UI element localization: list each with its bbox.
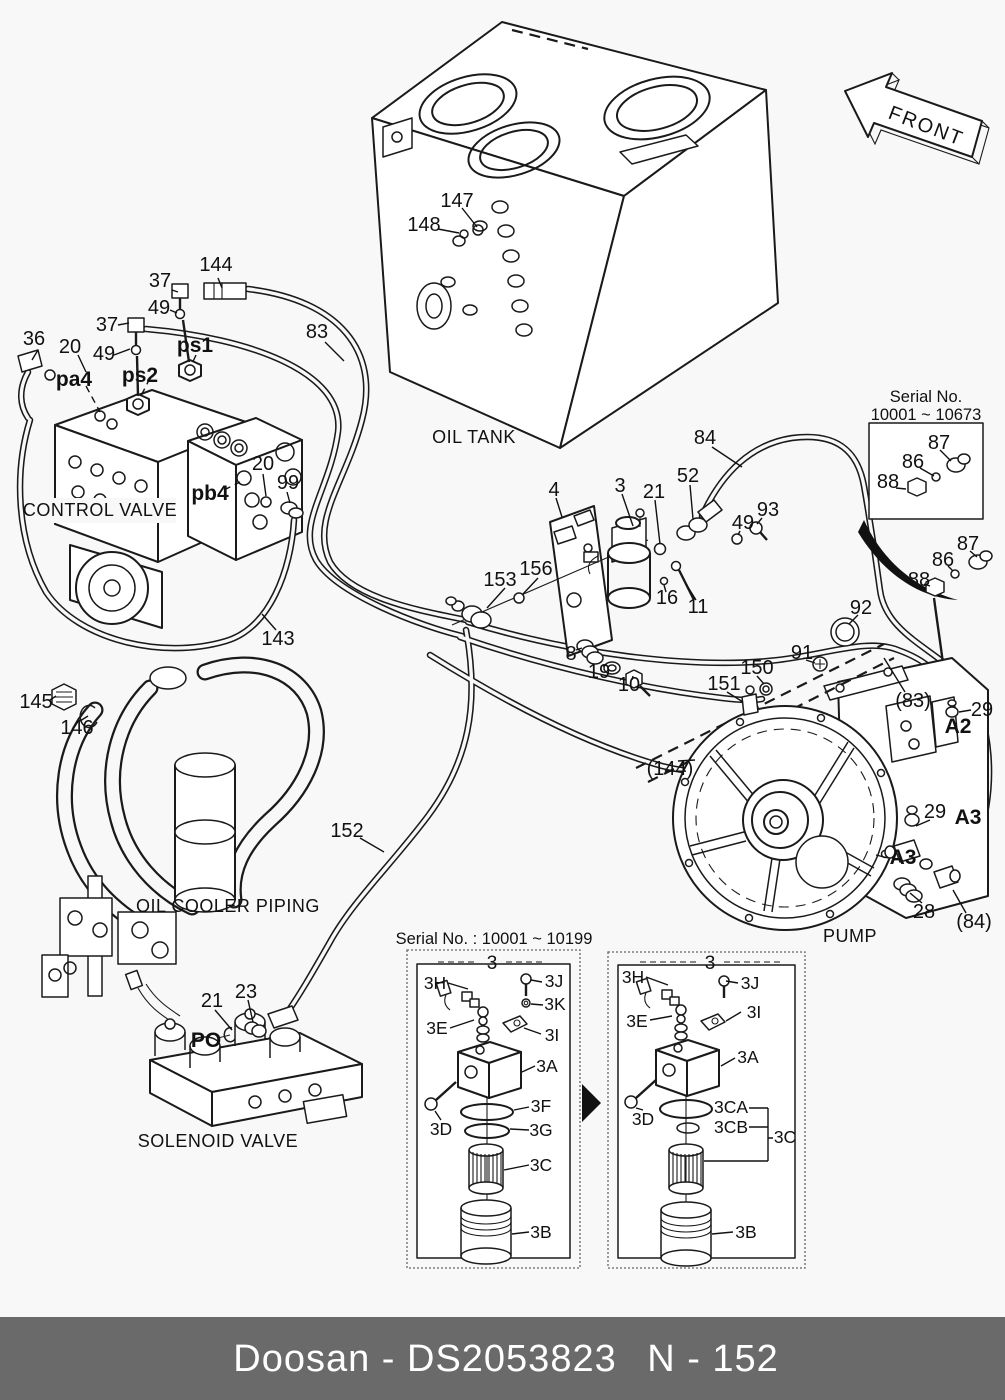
inset-right-3i: 3I	[747, 1002, 762, 1022]
part-label-150: 150	[740, 657, 773, 679]
part-label-37b: 37	[96, 314, 118, 336]
part-label-23: 23	[235, 981, 257, 1003]
part-label-20a: 20	[59, 336, 81, 358]
inset-left-3h: 3H	[424, 973, 446, 993]
part-label-86a: 86	[902, 451, 924, 473]
control-valve-drawing	[26, 360, 302, 628]
part-label-144p: (144)	[647, 758, 694, 780]
part-label-156: 156	[519, 558, 552, 580]
section-label-solenoid-valve: SOLENOID VALVE	[138, 1131, 298, 1151]
inset-left-3b: 3B	[530, 1222, 551, 1242]
port-label-a2: A2	[945, 715, 972, 738]
part-label-91: 91	[791, 642, 813, 664]
parts-diagram-page: FRONT	[0, 0, 1005, 1400]
part-label-16: 16	[656, 587, 678, 609]
front-arrow: FRONT	[845, 73, 989, 164]
part-label-145: 145	[19, 691, 52, 713]
inset-left-3e: 3E	[426, 1018, 447, 1038]
section-label-oil-cooler-piping: OIL COOLER PIPING	[136, 896, 320, 916]
part-label-146: 146	[60, 717, 93, 739]
section-label-oil-tank: OIL TANK	[432, 427, 516, 447]
inset-left-3d: 3D	[430, 1119, 452, 1139]
inset-right-3a: 3A	[737, 1047, 759, 1067]
part-label-36: 36	[23, 328, 45, 350]
port-label-a3a: A3	[955, 806, 982, 829]
inset-right-3d: 3D	[632, 1109, 654, 1129]
serial-note-line1: Serial No.	[890, 388, 962, 406]
part-label-88a: 88	[877, 471, 899, 493]
part-label-10: 10	[618, 674, 640, 696]
part-label-87a: 87	[928, 432, 950, 454]
part-label-11: 11	[688, 596, 709, 618]
part-label-88b: 88	[908, 569, 930, 591]
inset-right-3cb: 3CB	[714, 1117, 748, 1137]
inset-right-3ca: 3CA	[714, 1097, 748, 1117]
oil-cooler-piping-drawing	[42, 665, 316, 997]
port-label-ps2: ps2	[122, 364, 158, 387]
inset-left-3j: 3J	[545, 971, 563, 991]
part-label-84p: (84)	[956, 911, 992, 933]
part-label-4: 4	[548, 479, 559, 501]
port-label-pb4: pb4	[191, 482, 229, 505]
inset-left-3f: 3F	[531, 1096, 551, 1116]
part-label-147: 147	[440, 190, 473, 212]
part-label-29b: 29	[924, 801, 946, 823]
inset-right-group: 3	[705, 953, 716, 974]
footer-page-number: N - 152	[647, 1338, 779, 1380]
part-label-152: 152	[330, 820, 363, 842]
part-label-144: 144	[199, 254, 232, 276]
inset-left-3c: 3C	[530, 1155, 552, 1175]
inset-right-3b: 3B	[735, 1222, 756, 1242]
inset-left-3g: 3G	[529, 1120, 552, 1140]
part-label-21a: 21	[643, 481, 665, 503]
inset-left-3k: 3K	[544, 994, 566, 1014]
part-label-99: 99	[277, 472, 299, 494]
part-label-49a: 49	[148, 297, 170, 319]
inset-right-3e: 3E	[626, 1011, 647, 1031]
part-label-151: 151	[707, 673, 740, 695]
part-label-37a: 37	[149, 270, 171, 292]
part-label-86b: 86	[932, 549, 954, 571]
footer-brand-part: Doosan - DS2053823	[233, 1338, 616, 1380]
part-label-153: 153	[483, 569, 516, 591]
section-label-control-valve: CONTROL VALVE	[23, 500, 177, 520]
port-label-pa4: pa4	[56, 368, 93, 391]
part-label-92: 92	[850, 597, 872, 619]
pointer-triangle	[582, 1084, 601, 1122]
part-label-87b: 87	[957, 533, 979, 555]
part-label-8: 8	[565, 643, 576, 665]
port-label-po: PO	[191, 1029, 221, 1052]
part-label-29a: 29	[971, 699, 993, 721]
part-label-3: 3	[614, 475, 625, 497]
part-label-21b: 21	[201, 990, 223, 1012]
footer-bar: Doosan - DS2053823 N - 152	[0, 1317, 1005, 1400]
inset-left-3a: 3A	[536, 1056, 558, 1076]
inset-left-group: 3	[487, 953, 498, 974]
section-label-pump: PUMP	[823, 926, 877, 946]
inset-left-title: Serial No. : 10001 ~ 10199	[396, 930, 593, 948]
part-label-84: 84	[694, 427, 716, 449]
part-label-83p: (83)	[895, 690, 931, 712]
part-label-28: 28	[913, 901, 935, 923]
port-label-ps1: ps1	[177, 334, 214, 357]
part-label-143: 143	[261, 628, 294, 650]
part-label-20b: 20	[252, 453, 274, 475]
part-label-49b: 49	[93, 343, 115, 365]
inset-right-3c: 3C	[774, 1127, 796, 1147]
inset-left-3i: 3I	[545, 1025, 560, 1045]
part-label-49c: 49	[732, 512, 754, 534]
part-label-52: 52	[677, 465, 699, 487]
inset-right-3j: 3J	[741, 973, 759, 993]
port-label-a3b: A3	[890, 846, 917, 869]
serial-note-line2: 10001 ~ 10673	[871, 406, 982, 424]
part-label-93: 93	[757, 499, 779, 521]
part-label-19: 19	[588, 661, 610, 683]
inset-right-3h: 3H	[622, 967, 644, 987]
part-label-83: 83	[306, 321, 328, 343]
part-label-148: 148	[407, 214, 440, 236]
diagram-canvas: FRONT	[0, 0, 1005, 1400]
